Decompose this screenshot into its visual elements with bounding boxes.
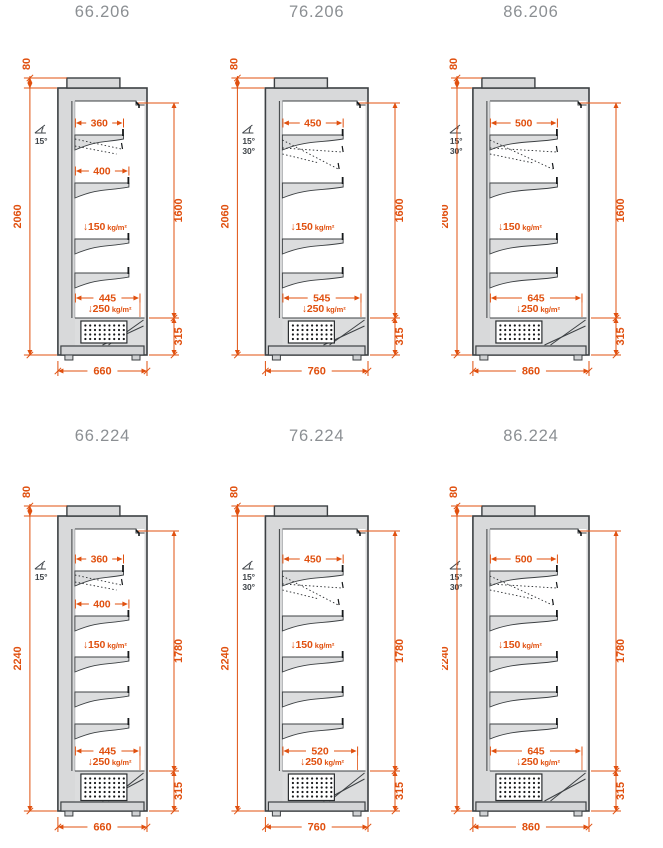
grille-dot (321, 329, 323, 331)
grille-dot (325, 791, 327, 793)
grille-dot (311, 333, 313, 335)
grille-dot (514, 795, 516, 797)
grille-dot (519, 782, 521, 784)
load-unit: kg/m² (522, 641, 542, 650)
grille-dot (108, 324, 110, 326)
plinth (61, 346, 144, 355)
angle-icon (242, 561, 253, 569)
shelf-load-label: ↓150kg/m² (83, 639, 127, 651)
grille-dot (89, 329, 91, 331)
grille-dot (297, 782, 299, 784)
grille-dot (99, 777, 101, 779)
grille-dot (519, 329, 521, 331)
width-label: 760 (308, 366, 326, 378)
grille-dot (301, 777, 303, 779)
top-housing (67, 78, 120, 88)
grille-dot (89, 338, 91, 340)
grille-dot (499, 329, 501, 331)
grille-dot (311, 786, 313, 788)
grille-dot (99, 795, 101, 797)
grille-dot (321, 338, 323, 340)
grille-dot (118, 333, 120, 335)
shelf-load-value: ↓150 (498, 639, 521, 651)
angle-icon (35, 561, 46, 569)
grille-dot (292, 782, 294, 784)
base-load-value: ↓250 (87, 756, 110, 768)
grille-dot (533, 324, 535, 326)
plinth (61, 802, 144, 811)
grille-dot (113, 782, 115, 784)
grille-dot (297, 791, 299, 793)
grille-dot (509, 786, 511, 788)
grille-dot (514, 786, 516, 788)
grille-dot (301, 786, 303, 788)
plinth (268, 346, 365, 355)
grille-dot (538, 777, 540, 779)
foot (132, 355, 140, 360)
grille-dot (538, 333, 540, 335)
grille-dot (523, 795, 525, 797)
grille-dot (292, 791, 294, 793)
grille-dot (301, 338, 303, 340)
grille-dot (89, 324, 91, 326)
grille-dot (509, 329, 511, 331)
panel-86-224: 86.224 15°30°8022401780315860500645↓150k… (442, 424, 663, 848)
grille-dot (514, 791, 516, 793)
grille-dot (297, 324, 299, 326)
grille-dot (84, 791, 86, 793)
foot (65, 811, 73, 816)
grille-dot (538, 782, 540, 784)
dimension-arrow (473, 369, 479, 374)
angle-icon (450, 561, 461, 569)
grille-dot (519, 795, 521, 797)
grille-dot (84, 795, 86, 797)
grille-dot (499, 324, 501, 326)
total-height-label: 2240 (442, 646, 451, 670)
dimension-arrow (265, 825, 271, 830)
foot (353, 355, 361, 360)
shelf-load-value: ↓150 (83, 221, 106, 233)
grille-dot (538, 786, 540, 788)
interior-cavity (75, 101, 145, 318)
grille-dot (519, 791, 521, 793)
grille-dot (94, 324, 96, 326)
grille-dot (306, 333, 308, 335)
grille-dot (123, 333, 125, 335)
grille-dot (504, 791, 506, 793)
grille-dot (104, 786, 106, 788)
grille-dot (528, 786, 530, 788)
grille-dot (321, 795, 323, 797)
grille-dot (316, 333, 318, 335)
grille-dot (538, 338, 540, 340)
grille-dot (316, 324, 318, 326)
grille-dot (104, 791, 106, 793)
shelf-angle-label: 15° (35, 136, 48, 146)
grille-dot (118, 777, 120, 779)
model-number: 86.224 (476, 425, 586, 447)
grille-dot (311, 791, 313, 793)
grille-dot (89, 791, 91, 793)
foot (272, 355, 280, 360)
grille-dot (325, 324, 327, 326)
grille-dot (292, 777, 294, 779)
base-load-label: ↓250kg/m² (87, 303, 131, 315)
grille-dot (533, 795, 535, 797)
load-unit: kg/m² (112, 758, 132, 767)
width-label: 660 (93, 366, 111, 378)
cabinet-drawing: 15°8022401780315660360400445↓150kg/m²↓25… (0, 424, 221, 848)
grille-dot (113, 791, 115, 793)
top-height-label: 80 (21, 486, 33, 498)
base-height-label: 315 (394, 327, 406, 345)
grille-dot (297, 795, 299, 797)
grille-dot (504, 329, 506, 331)
base-height-label: 315 (173, 782, 185, 800)
shelf-load-value: ↓150 (83, 639, 106, 651)
grille-dot (321, 324, 323, 326)
grille-dot (104, 795, 106, 797)
grille-dot (499, 338, 501, 340)
grille-dot (321, 791, 323, 793)
top-housing (482, 506, 535, 516)
dimension-arrow (363, 825, 369, 830)
grille-dot (84, 333, 86, 335)
grille-dot (509, 333, 511, 335)
grille-dot (89, 777, 91, 779)
grille-dot (113, 338, 115, 340)
base-load-value: ↓250 (87, 303, 110, 315)
grille-dot (89, 782, 91, 784)
grille-dot (325, 333, 327, 335)
grille-dot (306, 791, 308, 793)
grille-dot (292, 786, 294, 788)
grille-dot (84, 777, 86, 779)
front-height-label: 1600 (615, 198, 627, 222)
shelf-depth-label: 400 (93, 599, 110, 611)
panel-76-224: 76.224 15°30°8022401780315760450520↓150k… (221, 424, 442, 848)
grille-dot (311, 329, 313, 331)
grille-dot (316, 786, 318, 788)
grille-dot (94, 338, 96, 340)
grille-dot (330, 782, 332, 784)
grille-dot (123, 777, 125, 779)
grille-dot (519, 324, 521, 326)
grille-dot (528, 333, 530, 335)
shelf-angle-label: 15° (35, 572, 48, 582)
grille-dot (297, 329, 299, 331)
grille-dot (499, 333, 501, 335)
grille-dot (297, 333, 299, 335)
grille-dot (94, 333, 96, 335)
grille-dot (528, 338, 530, 340)
grille-dot (523, 329, 525, 331)
grille-dot (113, 329, 115, 331)
cabinet-drawing: 15°30°8020601600315760450545↓150kg/m²↓25… (221, 0, 442, 424)
grille-dot (306, 795, 308, 797)
grille-dot (325, 338, 327, 340)
grille-dot (306, 324, 308, 326)
grille-dot (523, 324, 525, 326)
load-unit: kg/m² (107, 223, 127, 232)
grille-dot (108, 795, 110, 797)
grille-dot (99, 786, 101, 788)
grille-dot (325, 782, 327, 784)
grille-dot (89, 795, 91, 797)
shelf-depth-label: 450 (304, 554, 321, 566)
grille-dot (538, 329, 540, 331)
base-height-label: 315 (615, 327, 627, 345)
base-height-label: 315 (394, 782, 406, 800)
grille-dot (118, 782, 120, 784)
grille-dot (533, 786, 535, 788)
cabinet-drawing: 15°30°8022401780315860500645↓150kg/m²↓25… (442, 424, 663, 848)
grille-dot (123, 795, 125, 797)
grille-dot (523, 786, 525, 788)
dimension-arrow (142, 825, 148, 830)
top-height-label: 80 (228, 58, 240, 70)
grille-dot (292, 795, 294, 797)
base-load-label: ↓250kg/m² (87, 756, 131, 768)
model-number: 66.224 (47, 425, 157, 447)
grille-dot (514, 333, 516, 335)
grille-dot (99, 338, 101, 340)
top-height-label: 80 (448, 486, 460, 498)
grille-dot (325, 329, 327, 331)
shelf-load-label: ↓150kg/m² (290, 221, 334, 233)
grille-dot (504, 786, 506, 788)
grille-dot (108, 782, 110, 784)
model-number: 86.206 (476, 1, 586, 23)
grille-dot (509, 324, 511, 326)
panel-76-206: 76.206 15°30°8020601600315760450545↓150k… (221, 0, 442, 424)
grille-dot (316, 777, 318, 779)
width-label: 760 (308, 822, 326, 834)
grille-dot (523, 782, 525, 784)
grille-dot (94, 777, 96, 779)
base-load-label: ↓250kg/m² (516, 756, 560, 768)
foot (480, 811, 488, 816)
grille-dot (325, 777, 327, 779)
plinth (476, 346, 586, 355)
grille-dot (538, 324, 540, 326)
grille-dot (292, 329, 294, 331)
plinth (268, 802, 365, 811)
grille-dot (330, 324, 332, 326)
grille-dot (321, 333, 323, 335)
front-height-label: 1780 (615, 639, 627, 663)
grille-dot (509, 795, 511, 797)
grille-dot (108, 777, 110, 779)
grille-dot (316, 791, 318, 793)
grille-dot (519, 333, 521, 335)
grille-dot (523, 338, 525, 340)
grille-dot (321, 786, 323, 788)
grille-dot (108, 333, 110, 335)
grille-dot (504, 338, 506, 340)
grille-dot (528, 329, 530, 331)
base-load-value: ↓250 (300, 756, 323, 768)
grille-dot (113, 333, 115, 335)
grille-dot (330, 795, 332, 797)
foot (480, 355, 488, 360)
angle-icon (35, 125, 46, 133)
width-label: 860 (522, 822, 540, 834)
load-unit: kg/m² (522, 223, 542, 232)
top-housing (482, 78, 535, 88)
grille-dot (330, 786, 332, 788)
grille-dot (514, 777, 516, 779)
total-height-label: 2060 (442, 204, 451, 228)
grille-dot (84, 324, 86, 326)
grille-dot (104, 329, 106, 331)
load-unit: kg/m² (540, 758, 560, 767)
width-label: 860 (522, 366, 540, 378)
shelf-angle-label: 30° (242, 146, 255, 156)
grille-dot (311, 338, 313, 340)
grille-dot (306, 782, 308, 784)
grille-dot (118, 329, 120, 331)
foot (65, 355, 73, 360)
top-housing (274, 506, 327, 516)
base-load-label: ↓250kg/m² (302, 303, 346, 315)
grille-dot (292, 338, 294, 340)
load-unit: kg/m² (324, 758, 344, 767)
grille-dot (504, 782, 506, 784)
grille-dot (514, 329, 516, 331)
panel-86-206: 86.206 15°30°8020601600315860500645↓150k… (442, 0, 663, 424)
shelf-load-value: ↓150 (498, 221, 521, 233)
grille-dot (533, 333, 535, 335)
dimension-arrow (58, 825, 64, 830)
grille-dot (113, 324, 115, 326)
dimension-arrow (473, 825, 479, 830)
shelf-load-label: ↓150kg/m² (498, 639, 542, 651)
grille-dot (533, 791, 535, 793)
grille-dot (118, 786, 120, 788)
grille-dot (533, 338, 535, 340)
front-height-label: 1600 (173, 198, 185, 222)
grille-dot (99, 782, 101, 784)
grille-dot (306, 329, 308, 331)
model-number: 76.224 (262, 425, 372, 447)
grille-dot (84, 338, 86, 340)
grille-dot (108, 791, 110, 793)
model-number: 66.206 (47, 1, 157, 23)
shelf-depth-label: 500 (515, 554, 532, 566)
grille-dot (528, 795, 530, 797)
grille-dot (330, 791, 332, 793)
top-height-label: 80 (21, 58, 33, 70)
grille-dot (509, 777, 511, 779)
grille-dot (514, 324, 516, 326)
grille-dot (528, 782, 530, 784)
grille-dot (113, 786, 115, 788)
shelf-depth-label: 360 (91, 118, 108, 130)
cabinet-drawing: 15°30°8020601600315860500645↓150kg/m²↓25… (442, 0, 663, 424)
total-height-label: 2240 (12, 646, 24, 670)
top-housing (67, 506, 120, 516)
grille-dot (113, 795, 115, 797)
load-unit: kg/m² (326, 305, 346, 314)
grille-dot (292, 333, 294, 335)
shelf-load-value: ↓150 (290, 639, 313, 651)
total-height-label: 2060 (12, 204, 24, 228)
grille-dot (89, 786, 91, 788)
shelf-angle-label: 15° (242, 572, 255, 582)
grille-dot (311, 324, 313, 326)
grille-dot (292, 324, 294, 326)
grille-dot (301, 782, 303, 784)
base-load-label: ↓250kg/m² (300, 756, 344, 768)
panel-66-206: 66.206 15°8020601600315660360400445↓150k… (0, 0, 221, 424)
grille-dot (509, 782, 511, 784)
grille-dot (311, 777, 313, 779)
grille-dot (316, 338, 318, 340)
dimension-arrow (265, 369, 271, 374)
dimension-arrow (363, 369, 369, 374)
grille-dot (316, 782, 318, 784)
grille-dot (523, 333, 525, 335)
grille-dot (108, 329, 110, 331)
grille-dot (528, 791, 530, 793)
grille-dot (533, 329, 535, 331)
grille-dot (499, 786, 501, 788)
grille-dot (118, 795, 120, 797)
angle-icon (450, 125, 461, 133)
dimension-arrow (58, 369, 64, 374)
load-unit: kg/m² (315, 641, 335, 650)
grille-dot (123, 324, 125, 326)
grille-dot (104, 333, 106, 335)
grille-dot (514, 782, 516, 784)
grille-dot (301, 333, 303, 335)
grille-dot (99, 324, 101, 326)
grille-dot (99, 333, 101, 335)
grille-dot (99, 791, 101, 793)
grille-dot (330, 338, 332, 340)
grille-dot (94, 782, 96, 784)
grille-dot (104, 338, 106, 340)
grille-dot (519, 786, 521, 788)
grille-dot (84, 782, 86, 784)
grille-dot (330, 777, 332, 779)
grille-dot (104, 782, 106, 784)
plinth (476, 802, 586, 811)
grille-dot (123, 782, 125, 784)
model-number: 76.206 (262, 1, 372, 23)
top-height-label: 80 (448, 58, 460, 70)
foot (132, 811, 140, 816)
grille-dot (509, 791, 511, 793)
load-unit: kg/m² (112, 305, 132, 314)
grille-dot (108, 338, 110, 340)
grille-dot (301, 324, 303, 326)
grille-dot (306, 777, 308, 779)
dimension-arrow (142, 369, 148, 374)
panel-66-224: 66.224 15°8022401780315660360400445↓150k… (0, 424, 221, 848)
dimension-arrow (584, 369, 590, 374)
grille-dot (519, 777, 521, 779)
grille-dot (321, 777, 323, 779)
top-height-label: 80 (228, 486, 240, 498)
grille-dot (123, 329, 125, 331)
shelf-load-label: ↓150kg/m² (290, 639, 334, 651)
spec-sheet: 66.206 15°8020601600315660360400445↓150k… (0, 0, 663, 848)
grille-dot (301, 795, 303, 797)
grille-dot (514, 338, 516, 340)
